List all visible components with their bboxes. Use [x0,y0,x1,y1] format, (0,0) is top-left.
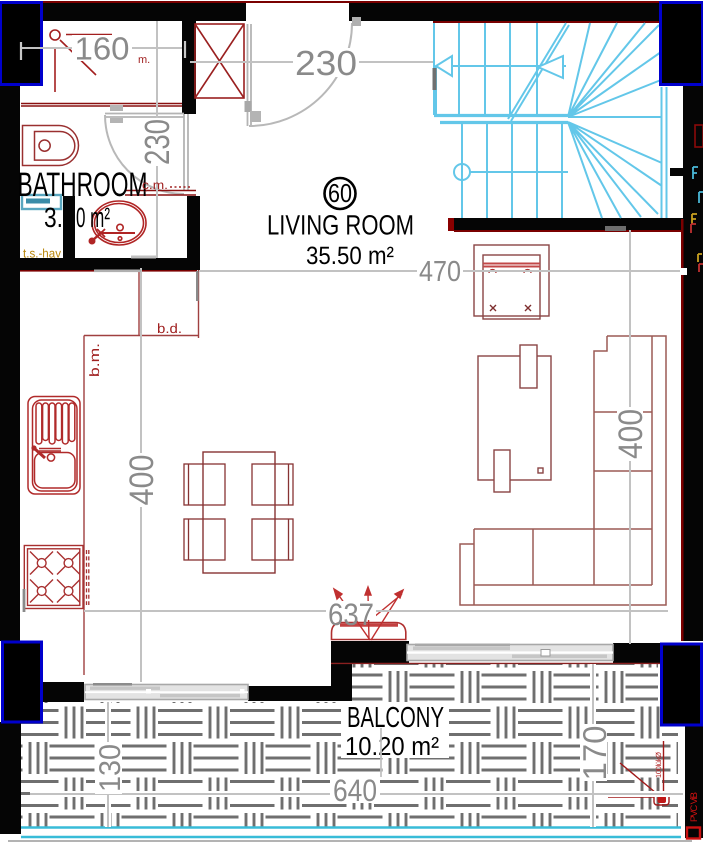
svg-text:ç.m.: ç.m. [142,178,168,192]
svg-text:t.s.-hav: t.s.-hav [23,247,62,261]
svg-text:PVC ViB: PVC ViB [689,792,700,822]
svg-text:BATHROOM: BATHROOM [18,166,148,204]
svg-text:b.d.: b.d. [157,321,182,336]
svg-text:400: 400 [123,455,161,506]
svg-text:470: 470 [419,256,461,288]
svg-text:400: 400 [612,409,650,459]
svg-text:35.50 m²: 35.50 m² [306,242,394,270]
svg-text:230: 230 [138,119,177,165]
svg-text:3.: 3. [44,202,63,233]
svg-text:b.m.: b.m. [87,343,102,377]
svg-text:640: 640 [333,773,377,808]
svg-text:637: 637 [328,597,374,632]
svg-text:100lükØ: 100lükØ [654,752,663,778]
svg-text:60: 60 [328,178,352,208]
svg-text:130: 130 [94,744,127,792]
svg-text:LIVING ROOM: LIVING ROOM [267,210,414,241]
svg-text:10.20 m²: 10.20 m² [345,731,439,761]
svg-text:170: 170 [576,726,613,781]
svg-text:160: 160 [75,31,130,67]
svg-text:230: 230 [295,44,357,83]
svg-text:BALCONY: BALCONY [347,702,444,734]
svg-text:0 m²: 0 m² [76,202,110,233]
svg-text:m.: m. [138,54,150,66]
